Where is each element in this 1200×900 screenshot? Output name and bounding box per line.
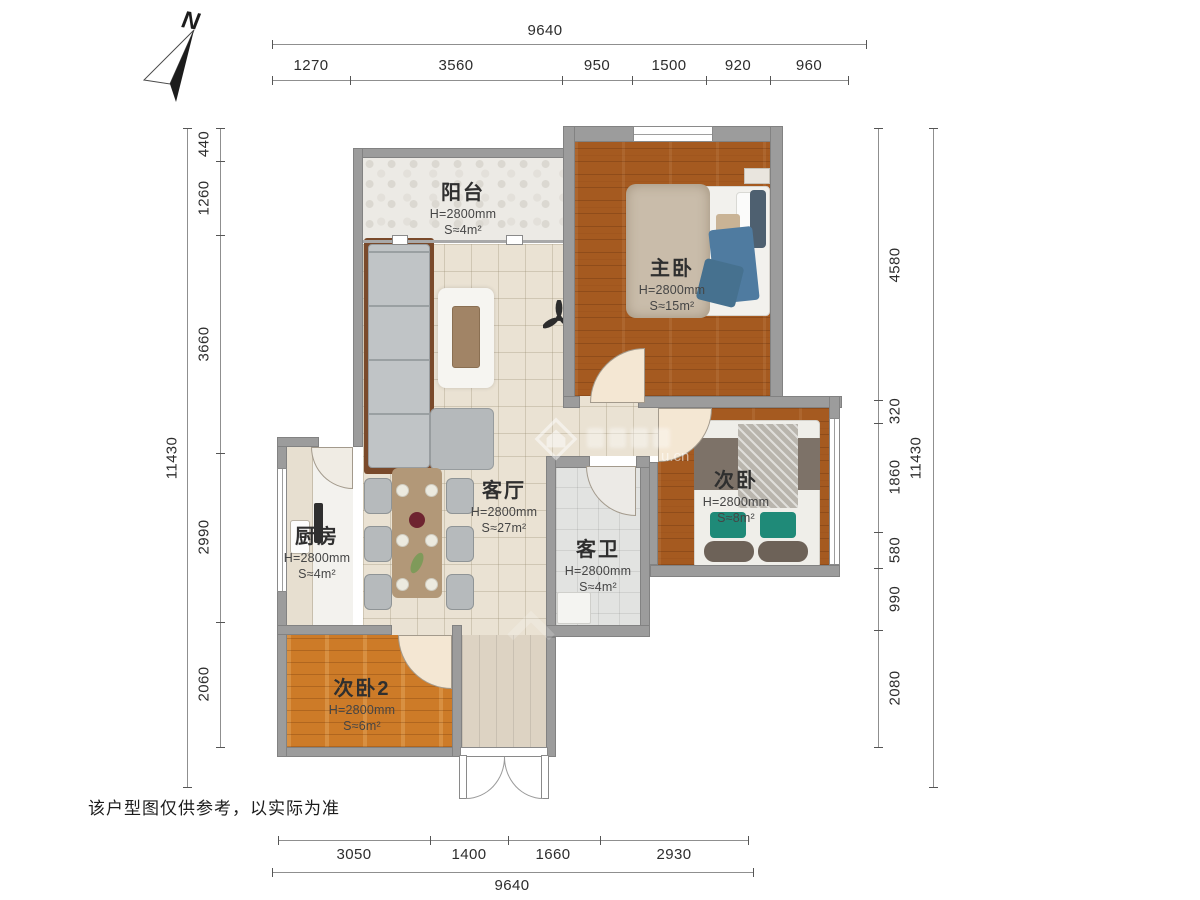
dim-line bbox=[272, 872, 753, 873]
room-height: H=2800mm bbox=[703, 495, 770, 509]
dim-tick bbox=[848, 76, 849, 85]
dim-tick bbox=[278, 836, 279, 845]
dim-tick bbox=[600, 836, 601, 845]
pillow bbox=[704, 541, 754, 562]
room-area: S≈6m² bbox=[329, 719, 396, 733]
room-name: 次卧2 bbox=[329, 672, 396, 701]
dim-tick bbox=[874, 532, 883, 533]
wall bbox=[546, 637, 556, 757]
dim-tick bbox=[874, 630, 883, 631]
room-height: H=2800mm bbox=[565, 564, 632, 578]
dim-line bbox=[272, 80, 848, 81]
dim-label: 3660 bbox=[196, 327, 213, 362]
dim-tick bbox=[866, 40, 867, 49]
dim-line bbox=[220, 128, 221, 747]
room-label-master-bedroom: 主卧 H=2800mm S≈15m² bbox=[639, 252, 706, 313]
table-centerpiece bbox=[409, 512, 425, 528]
balcony-door-post bbox=[392, 235, 408, 245]
room-name: 客厅 bbox=[471, 474, 538, 503]
compass-label: N bbox=[180, 6, 202, 36]
nightstand bbox=[744, 168, 770, 184]
dim-label: 2930 bbox=[657, 846, 692, 863]
balcony-door-post bbox=[506, 235, 523, 245]
dim-tick bbox=[272, 40, 273, 49]
dim-tick bbox=[874, 400, 883, 401]
dim-tick bbox=[216, 747, 225, 748]
dim-label: 440 bbox=[196, 131, 213, 157]
dim-tick bbox=[350, 76, 351, 85]
dim-label: 950 bbox=[584, 57, 610, 74]
wall bbox=[636, 456, 650, 468]
plate bbox=[425, 578, 438, 591]
dim-tick bbox=[272, 76, 273, 85]
room-name: 主卧 bbox=[639, 252, 706, 281]
room-name: 厨房 bbox=[284, 520, 351, 549]
dim-line bbox=[878, 128, 879, 747]
dim-label: 1400 bbox=[452, 846, 487, 863]
dim-label: 1660 bbox=[536, 846, 571, 863]
dim-tick bbox=[216, 128, 225, 129]
dim-tick bbox=[632, 76, 633, 85]
room-height: H=2800mm bbox=[329, 703, 396, 717]
plate bbox=[425, 484, 438, 497]
dim-label: 1260 bbox=[196, 181, 213, 216]
floor-plan-canvas: N bbox=[0, 0, 1200, 900]
wall bbox=[563, 126, 575, 402]
plate bbox=[396, 578, 409, 591]
dim-tick bbox=[748, 836, 749, 845]
room-label-guest-bathroom: 客卫 H=2800mm S≈4m² bbox=[565, 533, 632, 594]
room-area: S≈4m² bbox=[430, 223, 497, 237]
room-name: 次卧 bbox=[703, 464, 770, 493]
plate bbox=[425, 534, 438, 547]
window bbox=[829, 418, 840, 565]
dim-tick bbox=[874, 747, 883, 748]
dim-label: 990 bbox=[887, 586, 904, 612]
room-area: S≈4m² bbox=[284, 567, 351, 581]
dim-label: 1860 bbox=[887, 460, 904, 495]
room-label-bedroom-3: 次卧2 H=2800mm S≈6m² bbox=[329, 672, 396, 733]
dim-tick bbox=[183, 128, 192, 129]
dim-tick bbox=[216, 235, 225, 236]
dim-tick bbox=[508, 836, 509, 845]
dim-tick bbox=[216, 161, 225, 162]
bath-mat bbox=[557, 592, 591, 624]
coffee-table bbox=[452, 306, 480, 368]
wall bbox=[277, 625, 392, 635]
dim-line bbox=[933, 128, 934, 787]
wall bbox=[650, 565, 840, 577]
wall bbox=[452, 625, 462, 757]
dim-total-left: 11430 bbox=[164, 437, 181, 480]
dim-label: 2080 bbox=[887, 671, 904, 706]
room-name: 阳台 bbox=[430, 176, 497, 205]
dim-total-right: 11430 bbox=[908, 437, 925, 480]
room-label-bedroom-2: 次卧 H=2800mm S≈8m² bbox=[703, 464, 770, 525]
room-height: H=2800mm bbox=[430, 207, 497, 221]
dim-label: 3050 bbox=[337, 846, 372, 863]
dining-chair bbox=[364, 574, 392, 610]
room-height: H=2800mm bbox=[471, 505, 538, 519]
dim-tick bbox=[874, 128, 883, 129]
wall bbox=[640, 462, 650, 637]
wall bbox=[770, 126, 783, 408]
wall bbox=[546, 625, 650, 637]
dim-tick bbox=[874, 568, 883, 569]
entry-door-swing bbox=[504, 757, 543, 799]
dim-tick bbox=[929, 128, 938, 129]
sofa-chaise bbox=[430, 408, 494, 470]
dim-tick bbox=[216, 622, 225, 623]
dim-label: 320 bbox=[887, 398, 904, 424]
room-area: S≈4m² bbox=[565, 580, 632, 594]
entry-door-swing bbox=[466, 757, 505, 799]
dim-label: 1270 bbox=[294, 57, 329, 74]
wall bbox=[546, 456, 556, 637]
dim-tick bbox=[706, 76, 707, 85]
dim-tick bbox=[430, 836, 431, 845]
dim-tick bbox=[272, 868, 273, 877]
room-name: 客卫 bbox=[565, 533, 632, 562]
wall bbox=[277, 437, 319, 447]
dim-label: 580 bbox=[887, 537, 904, 563]
dim-label: 920 bbox=[725, 57, 751, 74]
sofa bbox=[368, 244, 430, 468]
dim-total-bottom: 9640 bbox=[495, 877, 530, 894]
pillow bbox=[758, 541, 808, 562]
dim-line bbox=[278, 840, 748, 841]
room-area: S≈15m² bbox=[639, 299, 706, 313]
room-area: S≈8m² bbox=[703, 511, 770, 525]
dim-label: 2060 bbox=[196, 667, 213, 702]
dim-label: 2990 bbox=[196, 520, 213, 555]
wall bbox=[277, 747, 462, 757]
entry-door-frame bbox=[460, 747, 548, 757]
dim-tick bbox=[770, 76, 771, 85]
dim-line bbox=[272, 44, 866, 45]
plate bbox=[396, 484, 409, 497]
wall bbox=[353, 148, 567, 158]
room-height: H=2800mm bbox=[284, 551, 351, 565]
entry-hall-floor bbox=[462, 635, 546, 747]
dining-chair bbox=[364, 478, 392, 514]
compass-north-icon: N bbox=[140, 4, 220, 104]
room-height: H=2800mm bbox=[639, 283, 706, 297]
room-label-living-room: 客厅 H=2800mm S≈27m² bbox=[471, 474, 538, 535]
room-area: S≈27m² bbox=[471, 521, 538, 535]
wall bbox=[563, 396, 580, 408]
dim-label: 3560 bbox=[439, 57, 474, 74]
dim-tick bbox=[929, 787, 938, 788]
room-label-balcony: 阳台 H=2800mm S≈4m² bbox=[430, 176, 497, 237]
dim-tick bbox=[753, 868, 754, 877]
plate bbox=[396, 534, 409, 547]
dim-label: 1500 bbox=[652, 57, 687, 74]
dim-total-top: 9640 bbox=[528, 22, 563, 39]
wall bbox=[353, 148, 363, 447]
dim-label: 960 bbox=[796, 57, 822, 74]
dim-label: 4580 bbox=[887, 248, 904, 283]
dim-tick bbox=[216, 453, 225, 454]
window bbox=[633, 126, 713, 142]
wall bbox=[638, 396, 842, 408]
dining-chair bbox=[446, 574, 474, 610]
disclaimer-text: 该户型图仅供参考，以实际为准 bbox=[88, 794, 340, 819]
dim-tick bbox=[183, 787, 192, 788]
room-label-kitchen: 厨房 H=2800mm S≈4m² bbox=[284, 520, 351, 581]
dining-chair bbox=[364, 526, 392, 562]
dim-tick bbox=[562, 76, 563, 85]
dim-tick bbox=[874, 423, 883, 424]
dim-line bbox=[187, 128, 188, 787]
